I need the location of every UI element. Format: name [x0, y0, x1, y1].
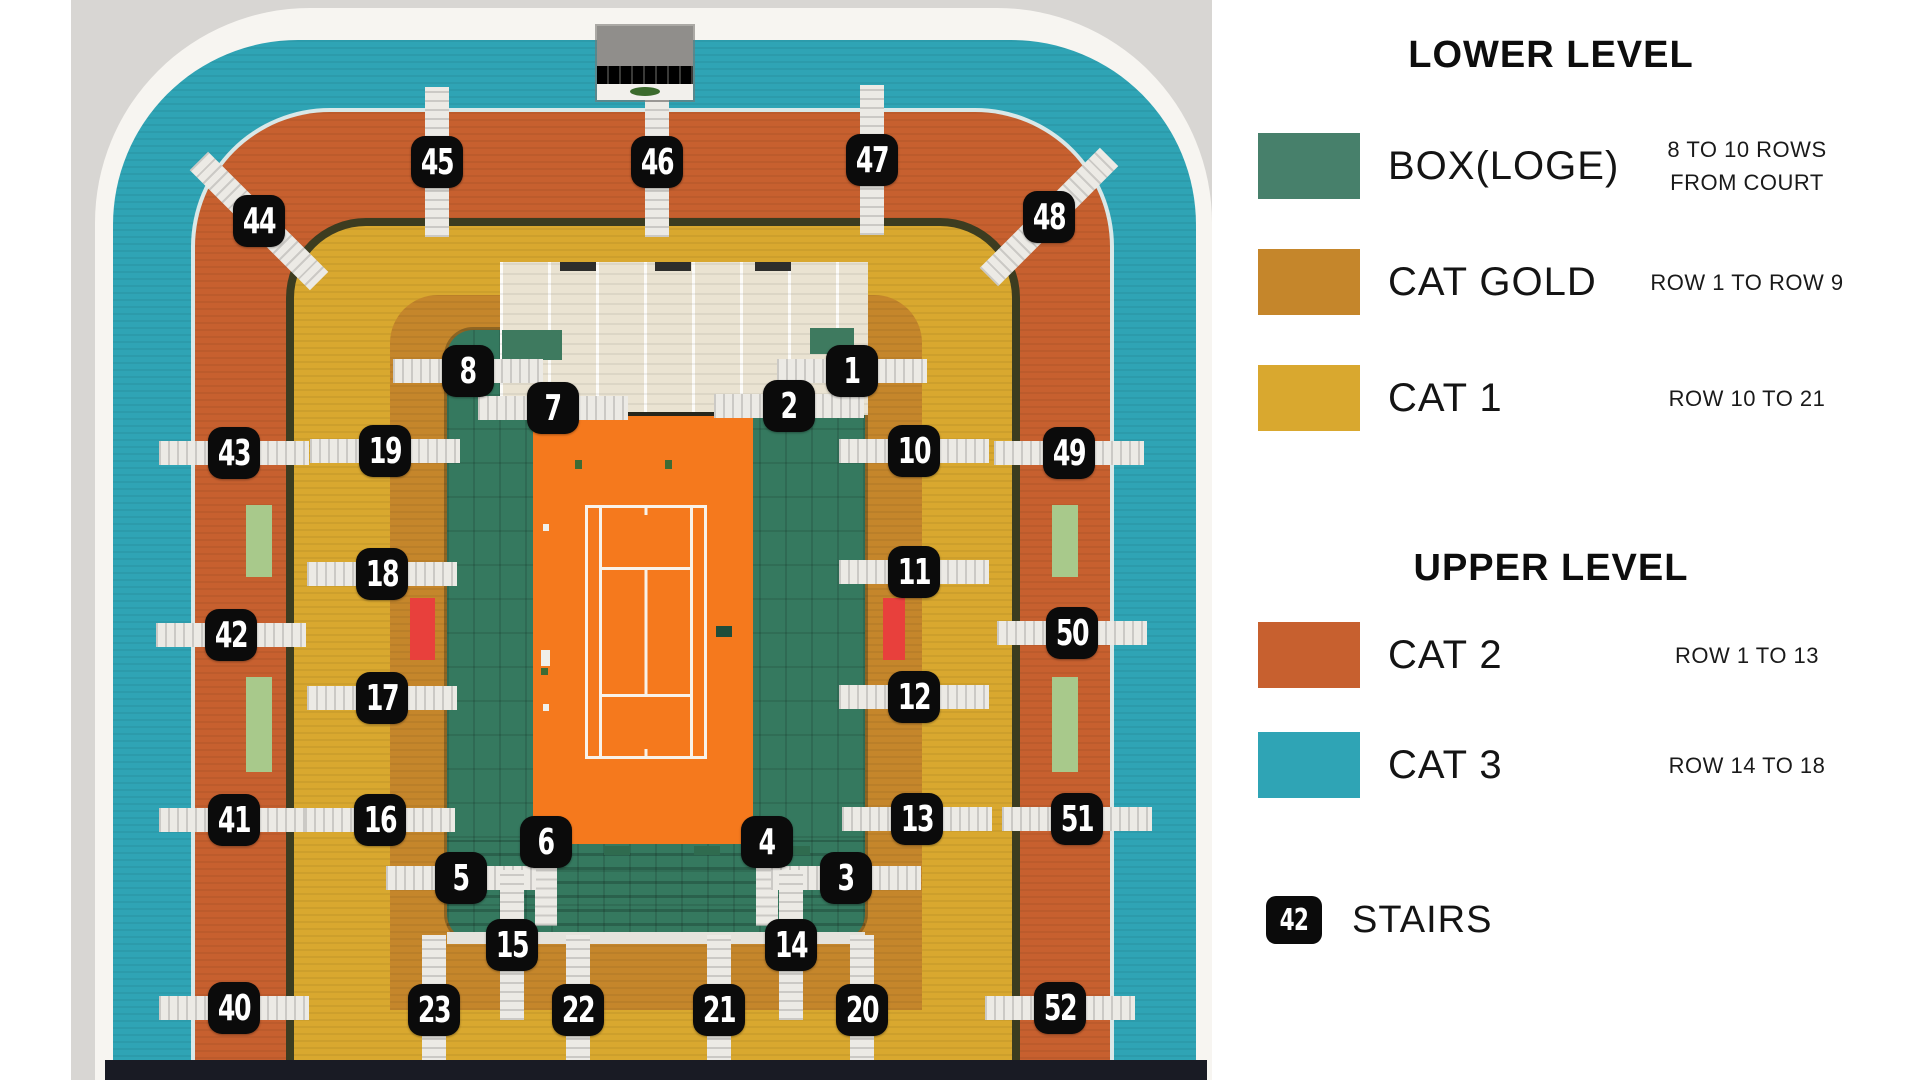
stairs-aisle-22: [566, 935, 590, 1080]
category-label: CAT GOLD: [1388, 260, 1597, 305]
seating-chart-page: 4546474448817243191049181142501712411613…: [0, 0, 1920, 1080]
tournament-logo: [630, 87, 660, 96]
stairs-aisle-20: [850, 935, 874, 1080]
category-row-range: ROW 10 TO 21: [1632, 382, 1862, 415]
video-screen-panel: [597, 66, 693, 84]
stairs-aisle-18: [307, 562, 457, 586]
stairs-aisle-10: [839, 439, 989, 463]
legend-section-upper-level: UPPER LEVELCAT 2ROW 1 TO 13CAT 3ROW 14 T…: [1240, 547, 1862, 798]
legend-section-title: LOWER LEVEL: [1240, 34, 1862, 77]
stadium-map: [71, 0, 1212, 1080]
legend-section-title: UPPER LEVEL: [1240, 547, 1862, 590]
stairs-aisle-21: [707, 935, 731, 1080]
legend-row-cat-2: CAT 2ROW 1 TO 13: [1258, 622, 1862, 688]
stairs-badge-number: 42: [1280, 903, 1309, 938]
legend-row-stairs: 42 STAIRS: [1266, 896, 1862, 944]
stairs-aisle-52: [985, 996, 1135, 1020]
stairs-aisle-6: [535, 831, 557, 926]
category-label: BOX(LOGE): [1388, 144, 1619, 189]
stairs-aisle-12: [839, 685, 989, 709]
category-swatch-box-loge: [1258, 133, 1360, 199]
stairs-aisle-40: [159, 996, 309, 1020]
category-row-range: ROW 1 TO ROW 9: [1632, 266, 1862, 299]
stairs-label: STAIRS: [1352, 899, 1492, 942]
stairs-aisle-49: [994, 441, 1144, 465]
stairs-aisle-1: [777, 359, 927, 383]
stairs-aisle-50: [997, 621, 1147, 645]
legend-panel: LOWER LEVELBOX(LOGE)8 TO 10 ROWSFROM COU…: [1240, 0, 1862, 1080]
stairs-aisle-15: [500, 870, 524, 1020]
stairs-aisle-17: [307, 686, 457, 710]
category-row-range: ROW 14 TO 18: [1632, 749, 1862, 782]
stairs-aisle-7: [478, 396, 628, 420]
stairs-aisle-41: [159, 808, 309, 832]
category-row-range: 8 TO 10 ROWSFROM COURT: [1632, 133, 1862, 199]
stairs-aisle-42: [156, 623, 306, 647]
video-screen: [597, 26, 693, 100]
legend-row-cat-1: CAT 1ROW 10 TO 21: [1258, 365, 1862, 431]
stairs-aisle-14: [779, 870, 803, 1020]
legend-row-cat-gold: CAT GOLDROW 1 TO ROW 9: [1258, 249, 1862, 315]
stairs-aisle-23: [422, 935, 446, 1080]
stairs-aisle-51: [1002, 807, 1152, 831]
category-swatch-cat-3: [1258, 732, 1360, 798]
stairs-aisle-43: [159, 441, 309, 465]
stairs-aisle-48: [980, 148, 1119, 287]
category-label: CAT 2: [1388, 633, 1503, 678]
stairs-aisle-16: [305, 808, 455, 832]
legend-row-cat-3: CAT 3ROW 14 TO 18: [1258, 732, 1862, 798]
category-swatch-cat-gold: [1258, 249, 1360, 315]
category-label: CAT 1: [1388, 376, 1503, 421]
video-screen-base: [597, 84, 693, 100]
stairs-aisle-45: [425, 87, 449, 237]
stairs-aisle-44: [190, 152, 329, 291]
category-swatch-cat-1: [1258, 365, 1360, 431]
stairs-aisle-11: [839, 560, 989, 584]
stairs-aisle-46: [645, 87, 669, 237]
stairs-aisle-layer: [71, 0, 1212, 1080]
stairs-aisle-19: [310, 439, 460, 463]
stairs-aisle-2: [714, 394, 864, 418]
category-label: CAT 3: [1388, 743, 1503, 788]
stairs-aisle-8: [393, 359, 543, 383]
category-swatch-cat-2: [1258, 622, 1360, 688]
stairs-aisle-13: [842, 807, 992, 831]
legend-section-lower-level: LOWER LEVELBOX(LOGE)8 TO 10 ROWSFROM COU…: [1240, 34, 1862, 431]
legend-row-box-loge: BOX(LOGE)8 TO 10 ROWSFROM COURT: [1258, 133, 1862, 199]
stairs-badge-icon: 42: [1266, 896, 1322, 944]
category-row-range: ROW 1 TO 13: [1632, 639, 1862, 672]
stairs-aisle-47: [860, 85, 884, 235]
south-facade-strip: [105, 1060, 1207, 1080]
